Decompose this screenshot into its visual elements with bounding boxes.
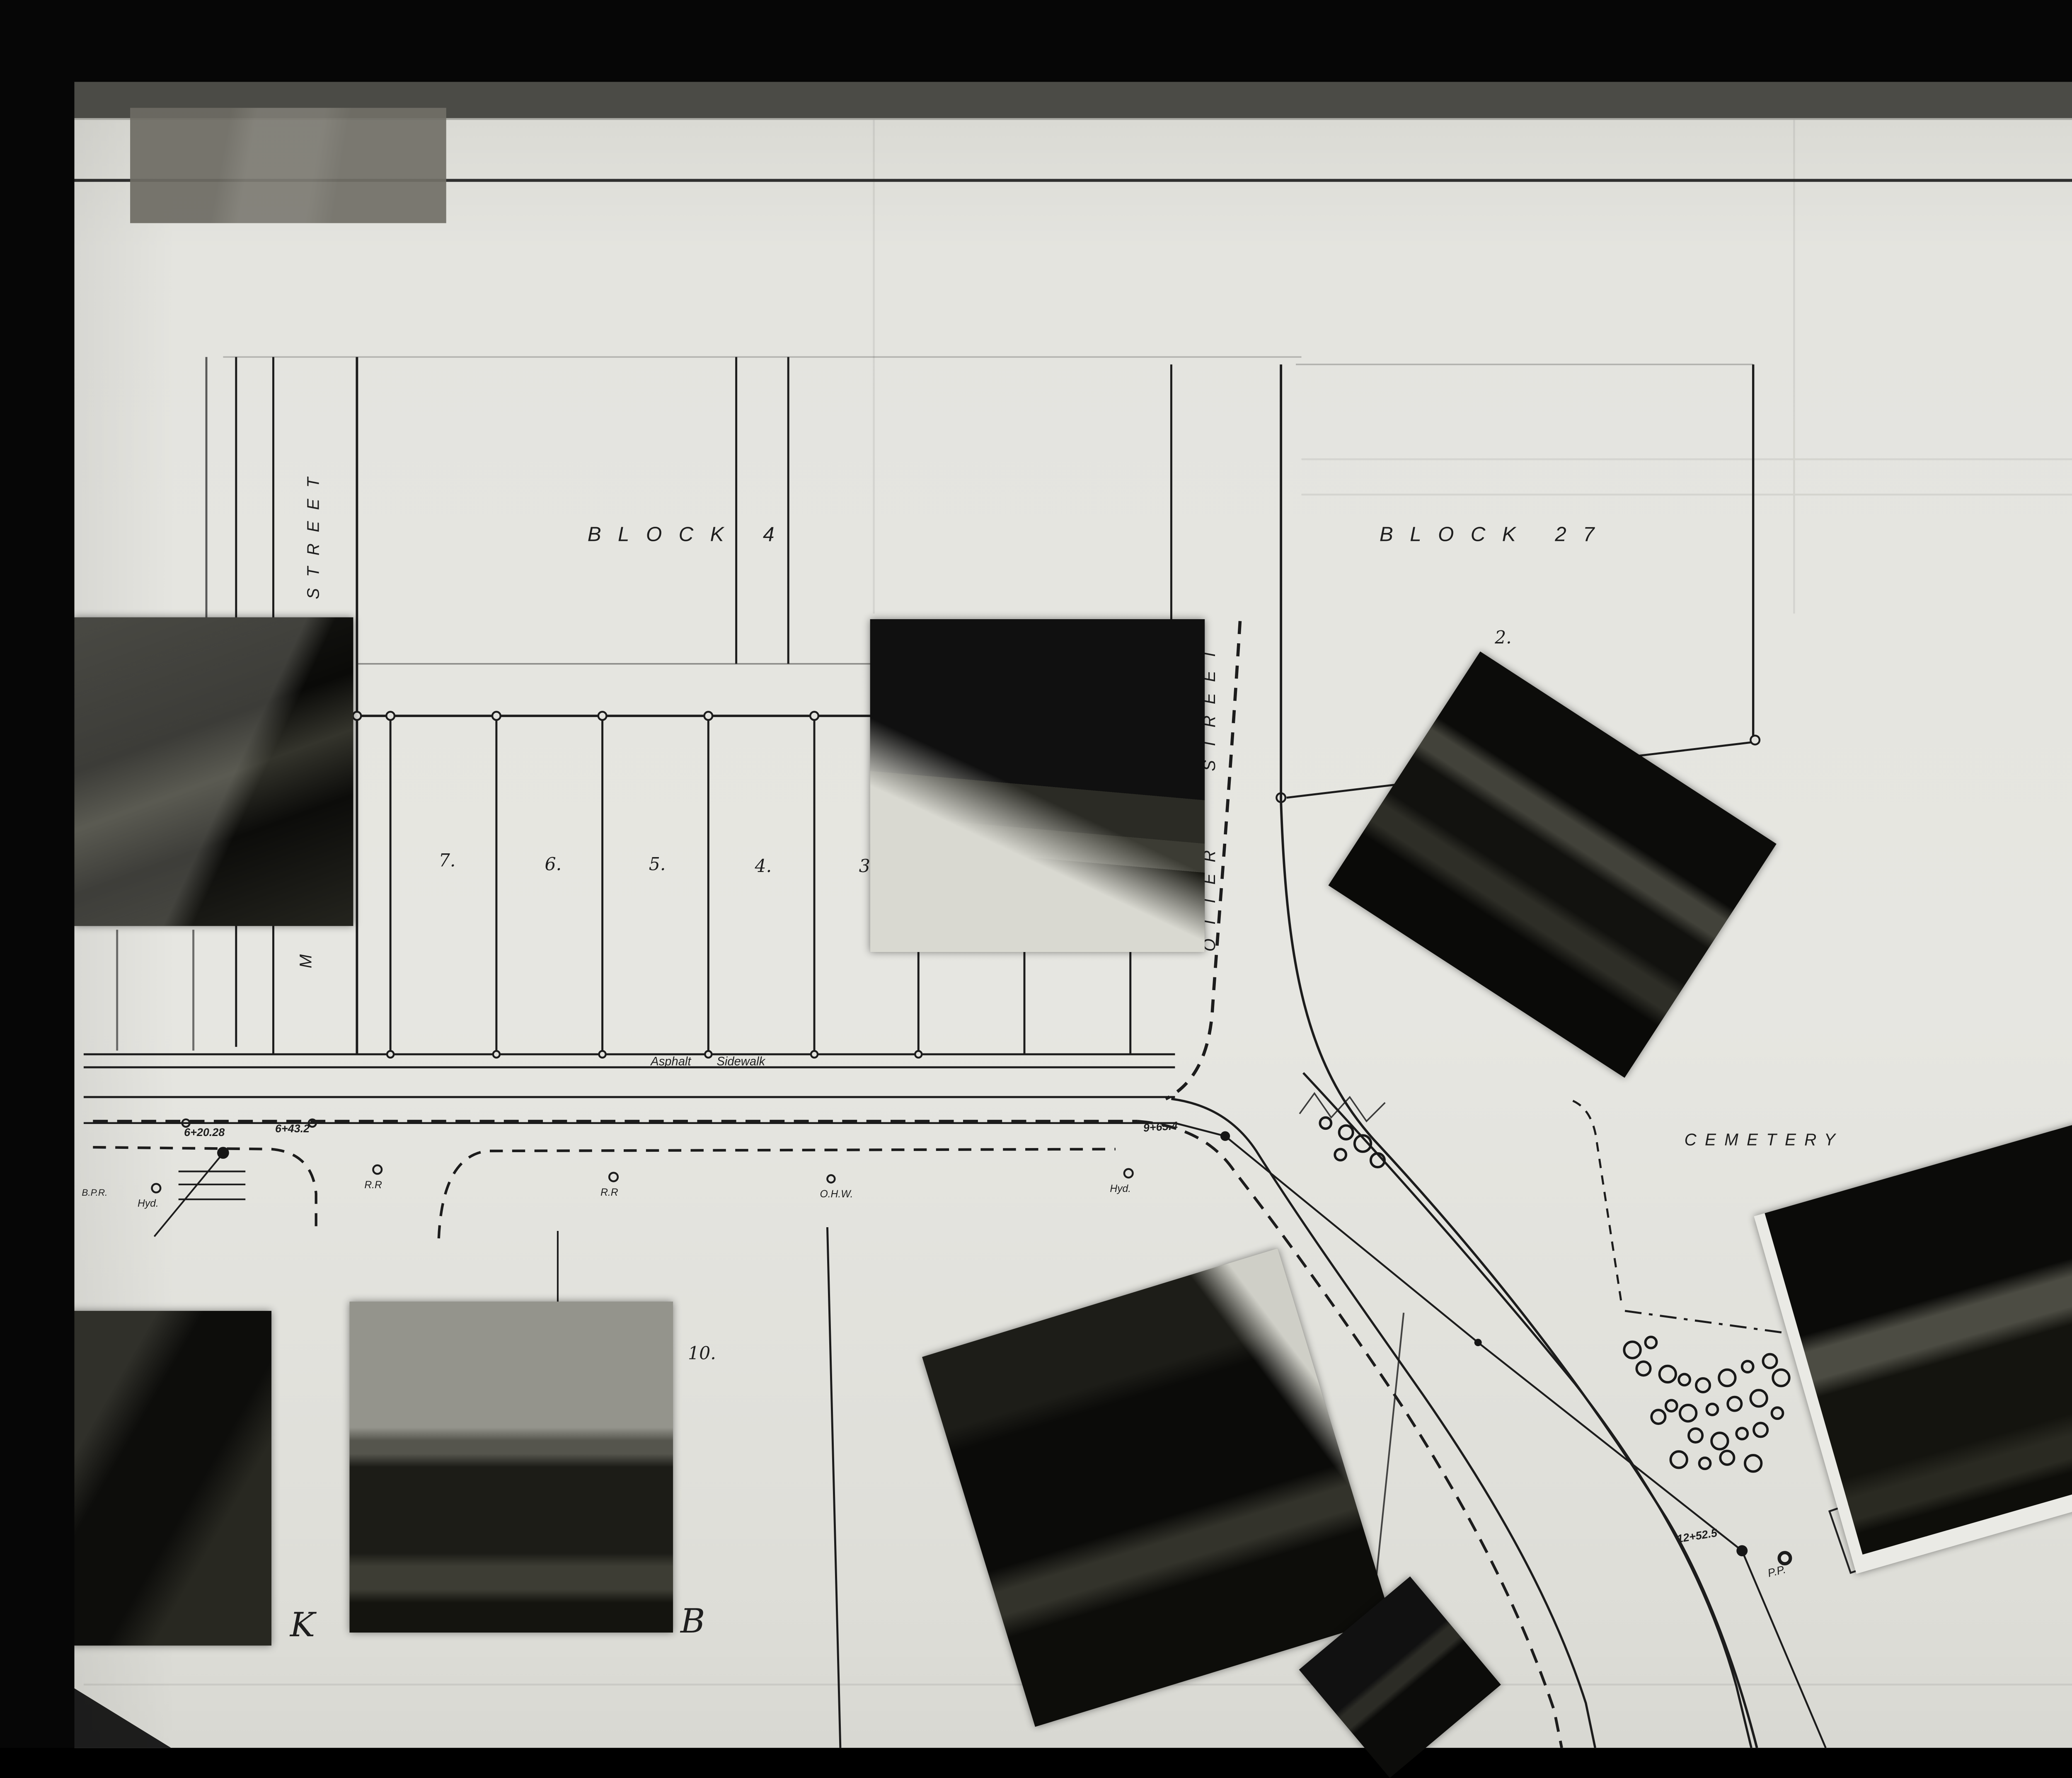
tree-symbol: [1763, 1354, 1777, 1368]
lot-number: 3: [859, 859, 870, 877]
tree-symbol: [1679, 1374, 1690, 1385]
tree-symbol: [1670, 1451, 1687, 1468]
lot-number: 4.: [755, 859, 772, 877]
tree-symbol: [1689, 1429, 1702, 1442]
hydrant-label: Hyd.: [1110, 1186, 1131, 1197]
tree-symbol: [1696, 1378, 1710, 1392]
tree-symbol: [1773, 1370, 1789, 1386]
cemetery-tree-symbols: [1320, 1117, 1789, 1471]
tree-symbol: [1742, 1361, 1753, 1372]
railroad-mark: R.R: [364, 1182, 382, 1193]
hydrant-label: Hyd.: [138, 1201, 159, 1211]
tree-symbol: [1745, 1455, 1761, 1471]
tree-symbol: [1645, 1337, 1656, 1348]
block27-label: BLOCK 27: [1380, 526, 1611, 547]
tree-symbol: [1660, 1366, 1676, 1382]
tree-symbol: [1707, 1404, 1718, 1415]
handwritten-letter-b: B: [680, 1606, 705, 1640]
tree-symbol: [1636, 1361, 1650, 1375]
pasted-photo: [349, 1301, 673, 1633]
tree-symbol: [1772, 1407, 1783, 1419]
pasted-photo: [70, 1311, 271, 1646]
tree-symbol: [1666, 1400, 1677, 1411]
tree-symbol: [1736, 1428, 1748, 1439]
tree-symbol: [1335, 1149, 1346, 1160]
lot-number: 5.: [649, 857, 666, 875]
station-label: 6+43.2: [275, 1125, 310, 1136]
overhead-wire-label: O.H.W.: [820, 1192, 853, 1202]
scan-margin-top: [0, 0, 2072, 82]
tree-symbol: [1711, 1433, 1728, 1449]
lot-number: 10.: [688, 1346, 716, 1364]
lot-number: 2.: [1495, 630, 1512, 648]
scanned-survey-map: BLOCK 4 BLOCK 27 STREET M U OTTER STREET…: [0, 0, 2072, 1748]
pasted-photo: [870, 619, 1205, 952]
street-left-label: STREET: [306, 449, 322, 616]
tree-symbol: [1699, 1458, 1711, 1469]
handwritten-letter-k: K: [290, 1610, 315, 1644]
tree-symbol: [1728, 1397, 1741, 1411]
tree-symbol: [1719, 1370, 1735, 1386]
lot-number: 6.: [545, 857, 562, 875]
lot-number: 7.: [439, 853, 456, 871]
cemetery-label: CEMETERY: [1685, 1132, 1844, 1149]
tree-symbol: [1750, 1390, 1767, 1406]
railroad-mark: R.R: [600, 1190, 618, 1200]
tree-symbol: [1680, 1405, 1696, 1421]
tree-symbol: [1720, 1451, 1734, 1465]
block4-label: BLOCK 4: [588, 526, 791, 547]
tape-patch: [130, 108, 446, 223]
sidewalk-label: Asphalt Sidewalk: [651, 1058, 765, 1070]
pasted-photo: [74, 617, 353, 926]
scan-margin-left: [0, 0, 74, 1748]
tree-symbol: [1339, 1126, 1353, 1139]
bench-mark-label: B.P.R.: [82, 1190, 107, 1199]
tree-symbol: [1754, 1423, 1767, 1436]
station-label: 6+20.28: [184, 1129, 225, 1140]
tree-symbol: [1624, 1342, 1640, 1358]
tree-symbol: [1320, 1117, 1331, 1129]
tree-symbol: [1651, 1410, 1665, 1424]
